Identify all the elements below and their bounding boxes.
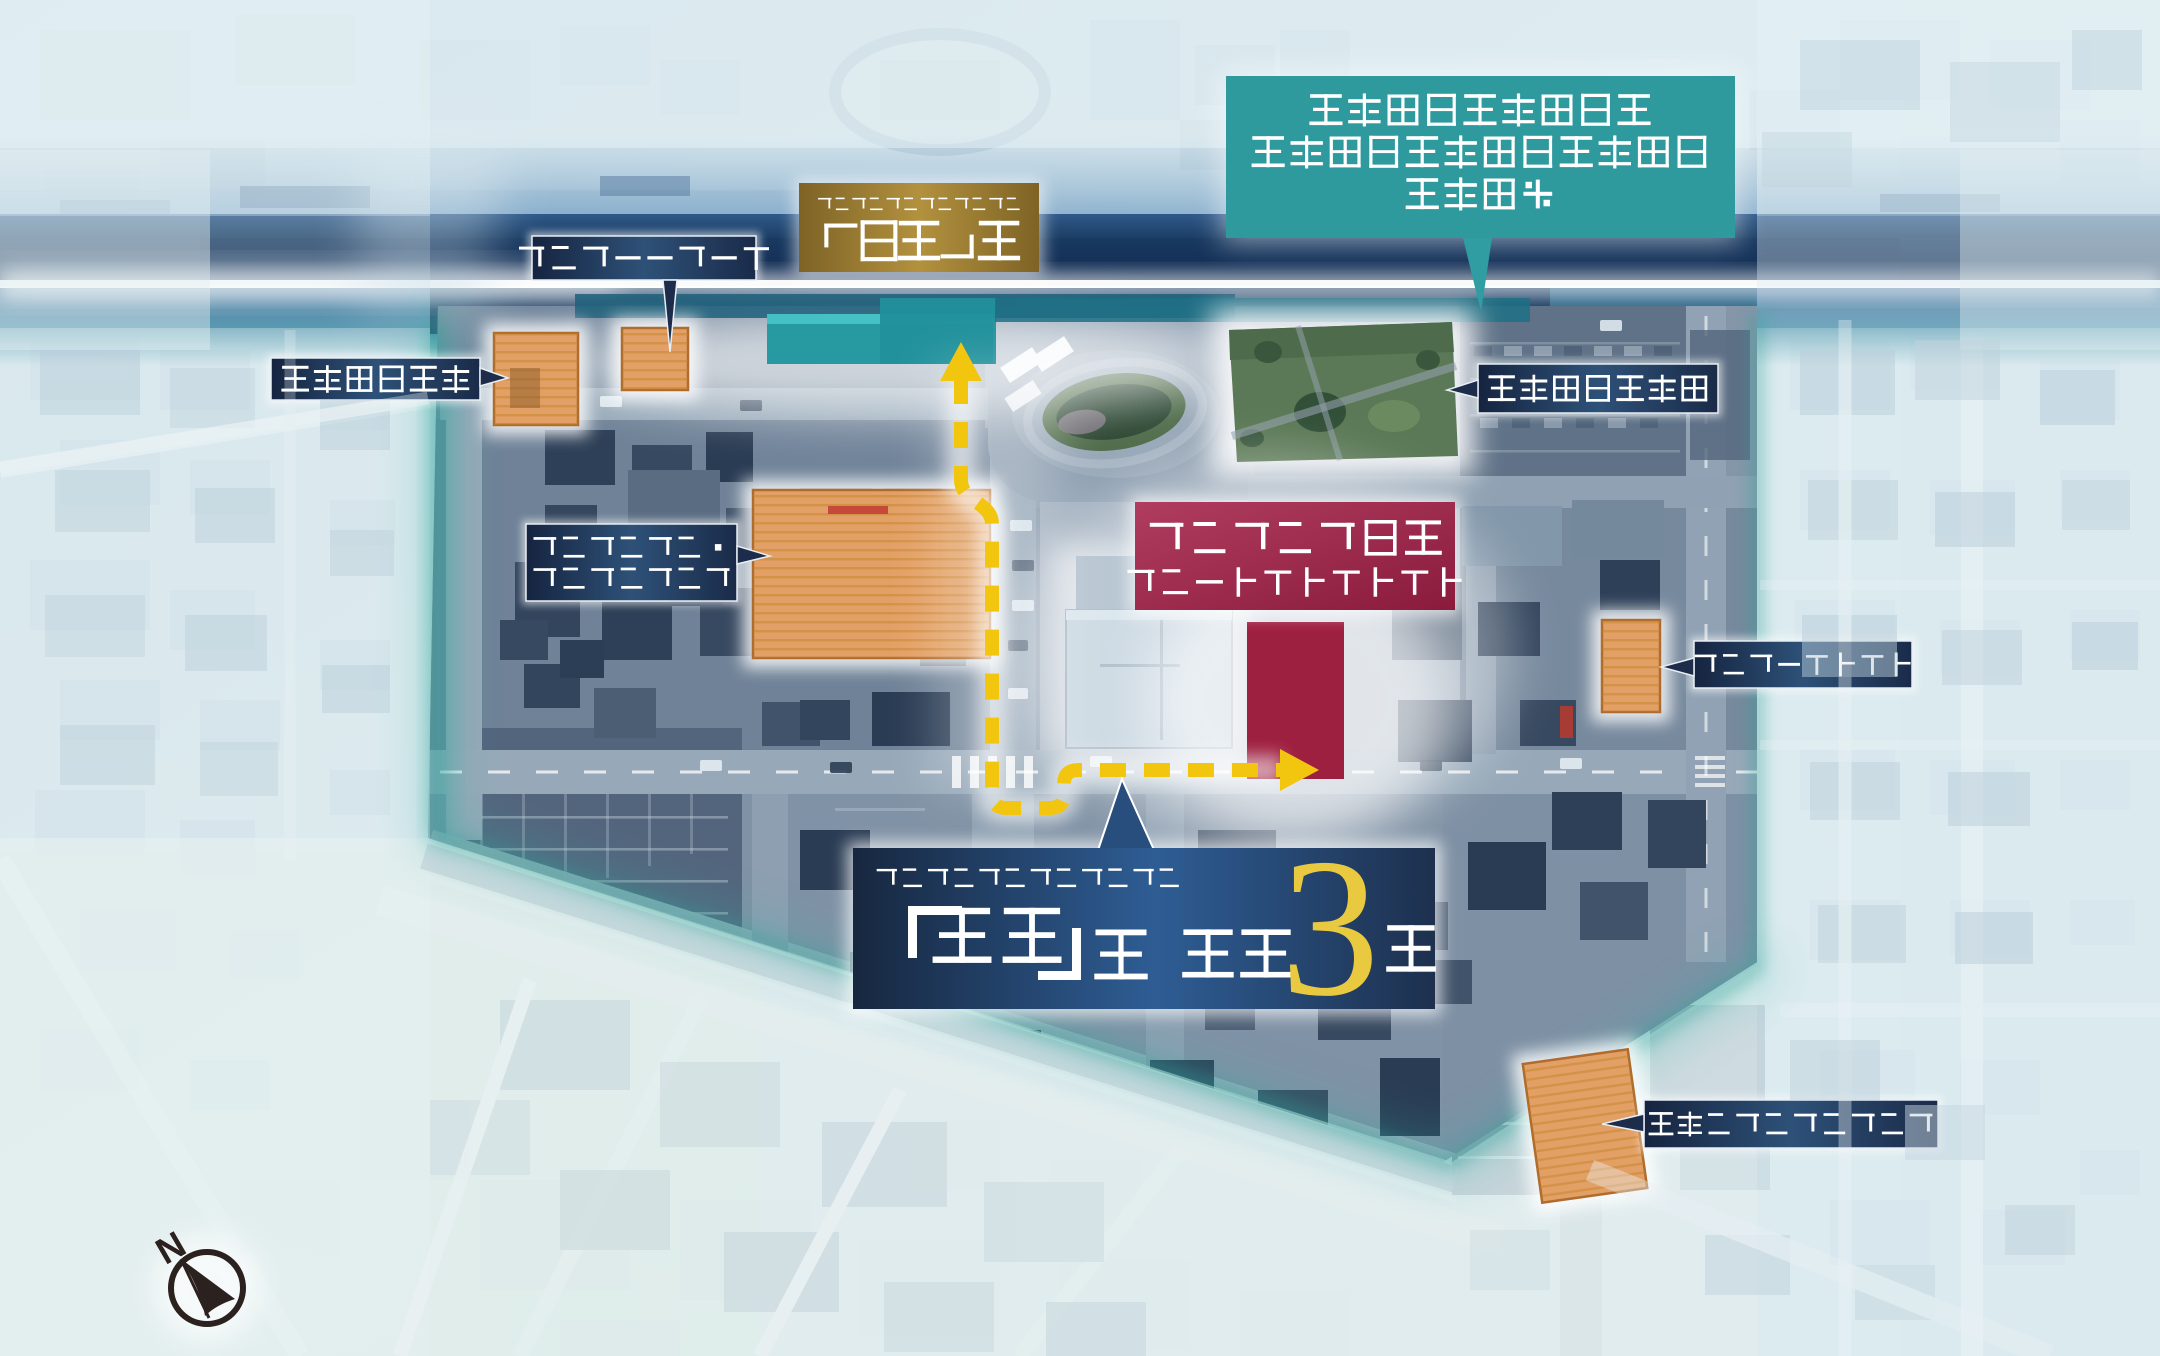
svg-text:3: 3: [1281, 818, 1380, 1037]
